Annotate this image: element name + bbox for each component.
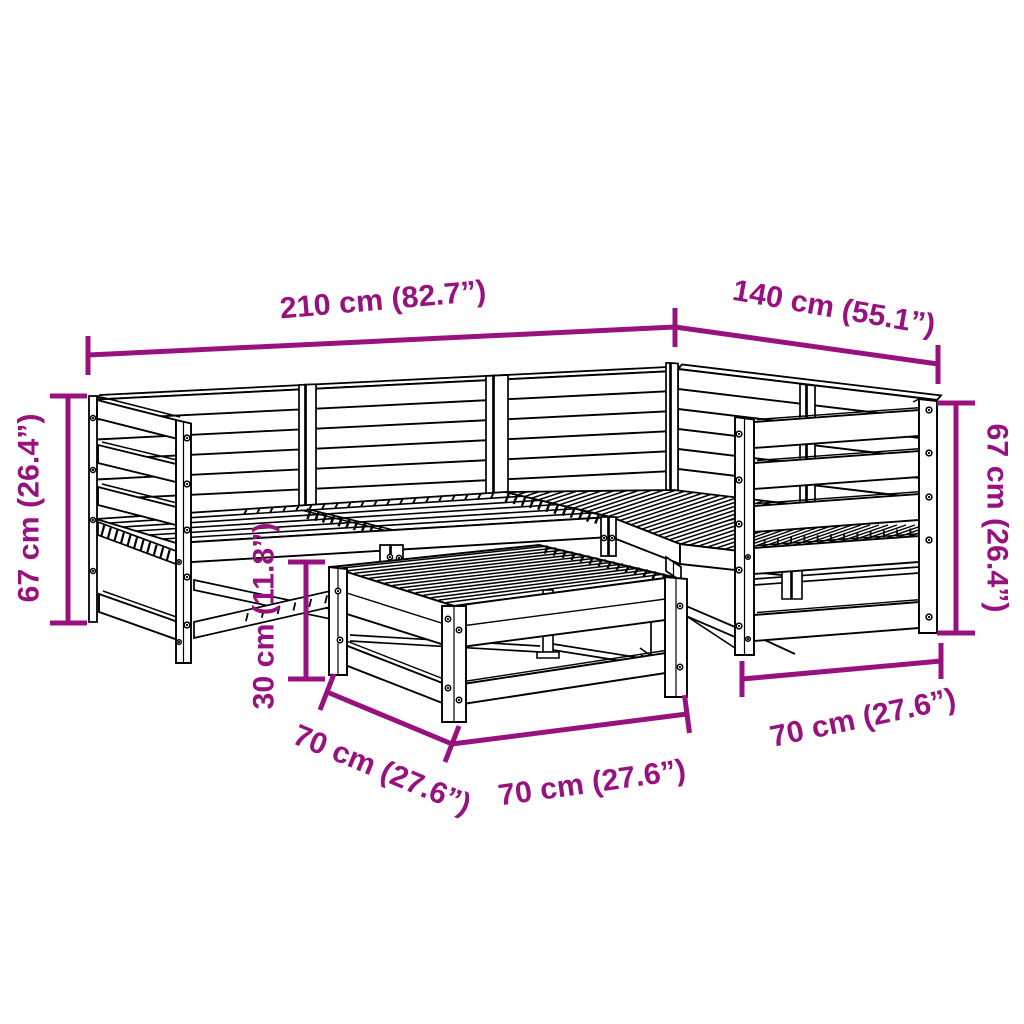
svg-text:67 cm (26.4”): 67 cm (26.4”) [13, 414, 46, 603]
svg-text:30 cm (11.8”): 30 cm (11.8”) [248, 523, 281, 710]
svg-text:67 cm (26.4”): 67 cm (26.4”) [981, 424, 1014, 613]
